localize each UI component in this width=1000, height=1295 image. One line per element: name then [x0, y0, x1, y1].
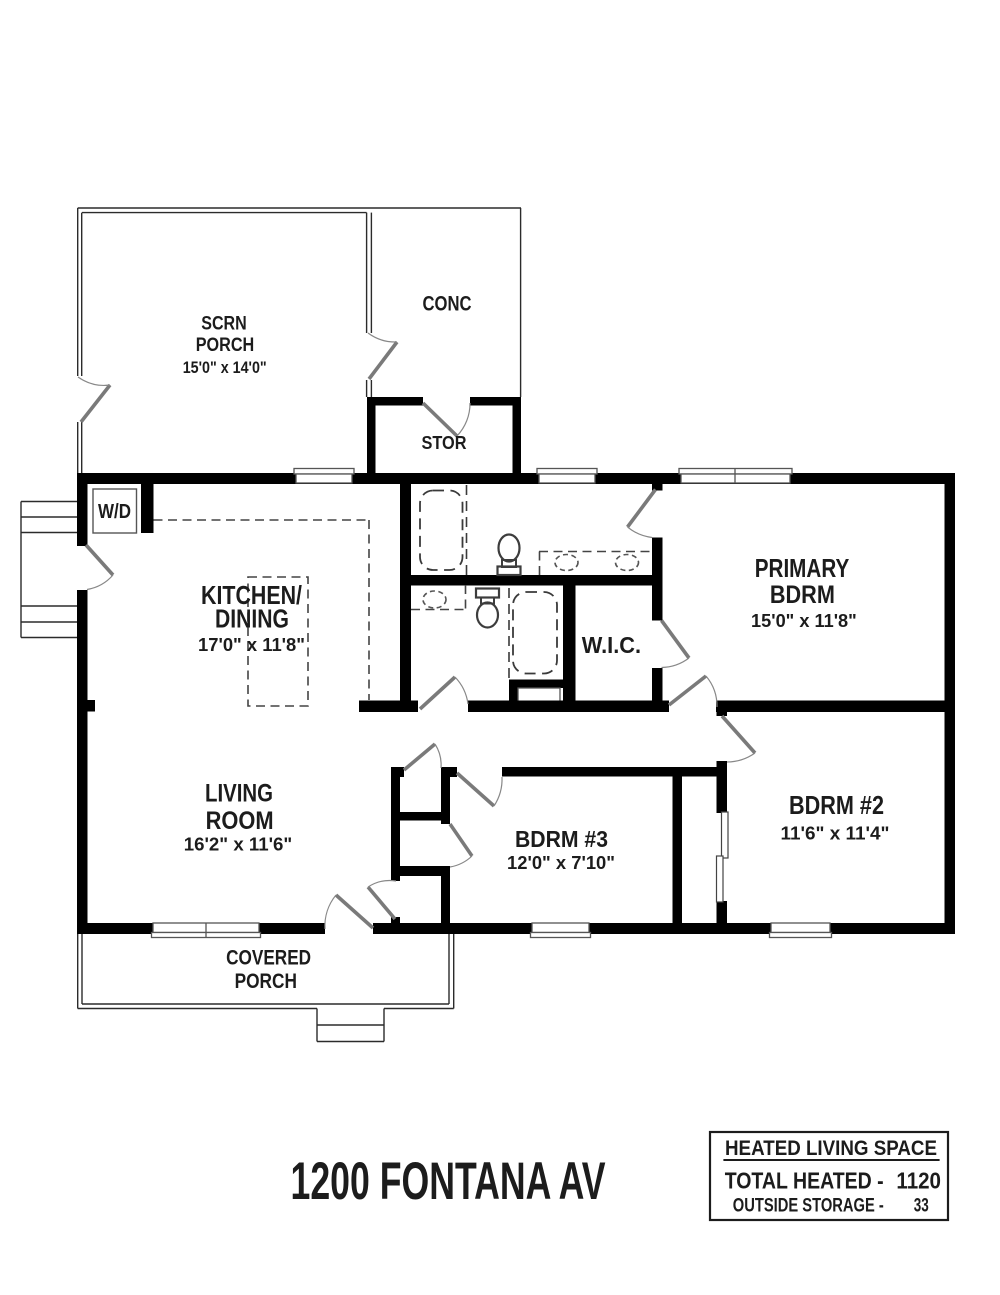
- svg-text:15'0" x 14'0": 15'0" x 14'0": [183, 359, 267, 377]
- svg-text:COVERED: COVERED: [226, 947, 311, 970]
- svg-text:SCRN: SCRN: [201, 313, 247, 335]
- svg-text:1200 FONTANA AV: 1200 FONTANA AV: [291, 1152, 606, 1211]
- svg-text:CONC: CONC: [423, 293, 472, 316]
- svg-text:BDRM #3: BDRM #3: [515, 826, 608, 852]
- svg-text:STOR: STOR: [422, 433, 467, 454]
- svg-text:ROOM: ROOM: [206, 807, 274, 835]
- svg-text:1120: 1120: [896, 1168, 941, 1194]
- svg-text:W/D: W/D: [98, 501, 131, 523]
- svg-text:33: 33: [914, 1195, 929, 1217]
- svg-text:TOTAL HEATED -: TOTAL HEATED -: [725, 1168, 884, 1194]
- svg-text:12'0" x 7'10": 12'0" x 7'10": [507, 853, 615, 873]
- svg-text:W.I.C.: W.I.C.: [582, 632, 641, 658]
- svg-text:16'2" x 11'6": 16'2" x 11'6": [184, 835, 293, 856]
- svg-text:HEATED LIVING SPACE: HEATED LIVING SPACE: [725, 1135, 937, 1160]
- svg-text:PORCH: PORCH: [196, 334, 255, 356]
- svg-text:LIVING: LIVING: [205, 780, 273, 808]
- svg-text:BDRM #2: BDRM #2: [789, 790, 884, 820]
- svg-text:BDRM: BDRM: [770, 581, 835, 609]
- svg-text:17'0" x 11'8": 17'0" x 11'8": [198, 634, 305, 655]
- svg-text:PRIMARY: PRIMARY: [755, 553, 850, 583]
- svg-text:DINING: DINING: [215, 606, 289, 634]
- svg-text:PORCH: PORCH: [235, 970, 297, 993]
- svg-text:OUTSIDE STORAGE -: OUTSIDE STORAGE -: [733, 1195, 884, 1217]
- svg-text:11'6" x 11'4": 11'6" x 11'4": [781, 823, 890, 844]
- svg-text:15'0" x 11'8": 15'0" x 11'8": [751, 610, 857, 631]
